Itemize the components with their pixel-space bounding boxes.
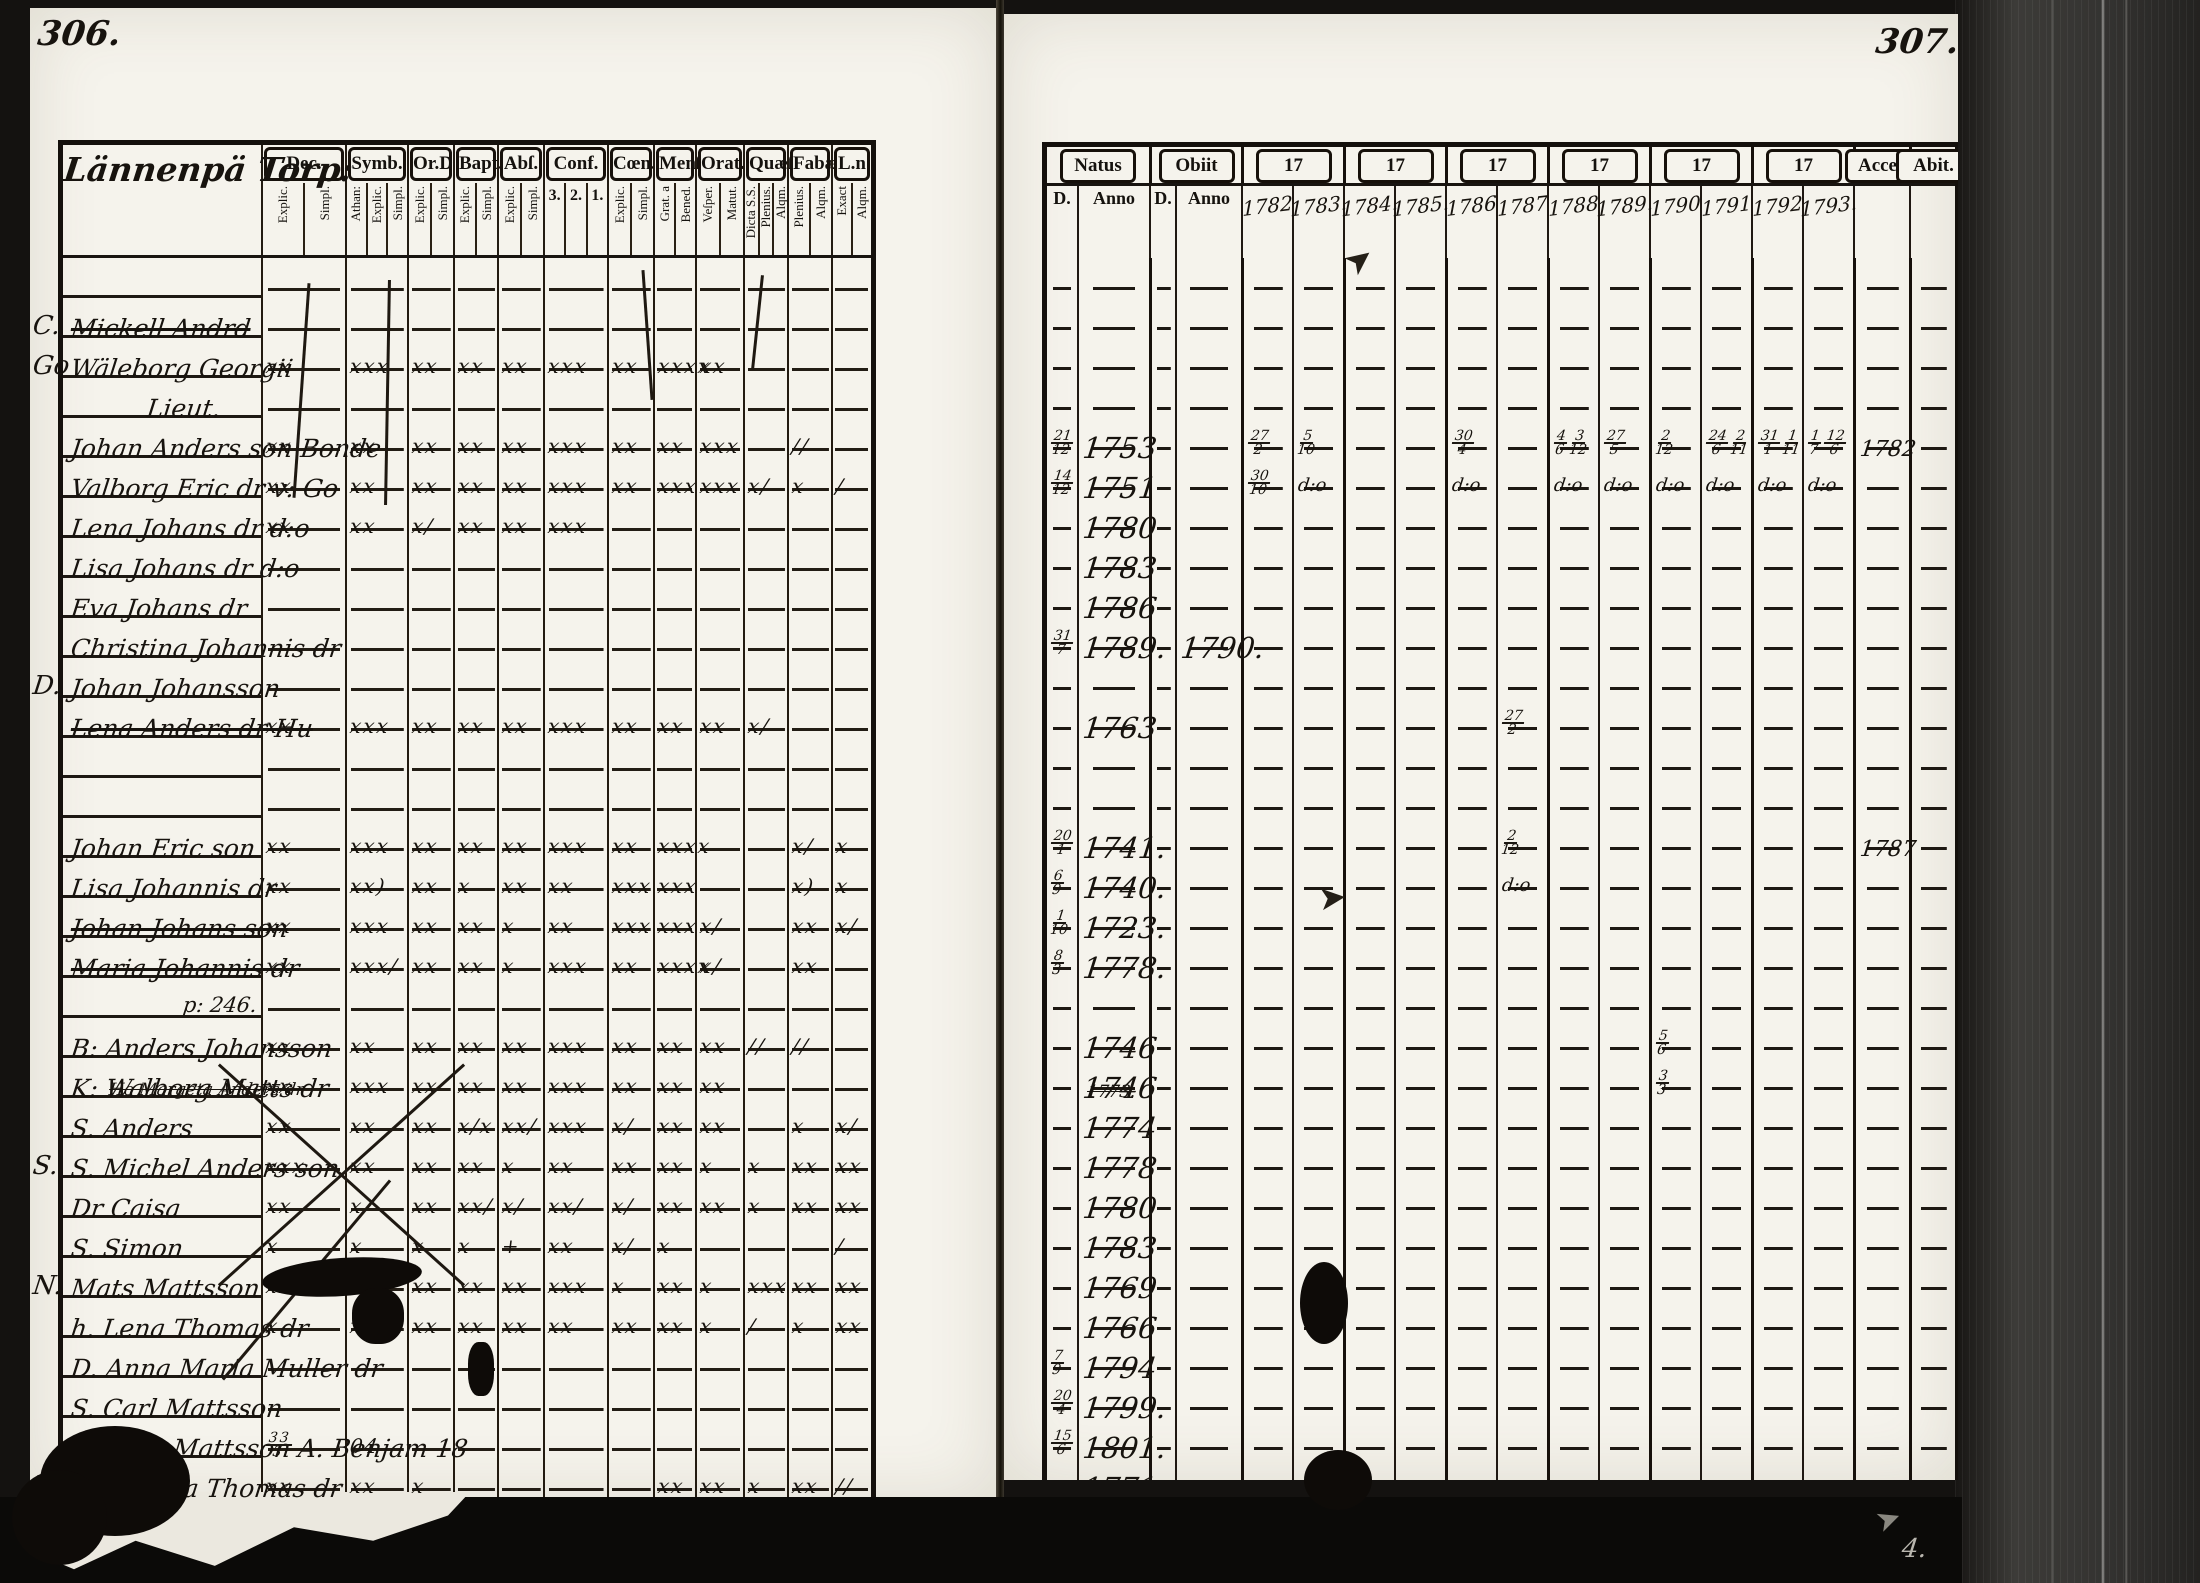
year-cell [1496,458,1547,498]
mark-cell [407,1378,453,1418]
mark-cell: xx [261,818,345,858]
mark-cell [407,738,453,778]
mark-cell [543,578,607,618]
year-cell [1343,738,1394,778]
ink-blot [1300,1262,1348,1344]
date-entry: 56 [1654,1030,1673,1056]
attendance-mark: xx [349,514,379,538]
name-cell: Johan Johans son [63,898,261,938]
mark-cell [407,538,453,578]
mark-cell [743,618,787,658]
column-label: Bapt. [456,147,496,181]
column-subheader: Simpl. [303,183,345,255]
column-header: Symb.Athan:Explic.Simpl. [345,145,407,255]
year-cell [1241,1418,1292,1458]
column-subheaders: Explic.Simpl. [409,183,453,255]
table-row: 2041799. [1047,1378,1955,1418]
year-cell [1445,538,1496,578]
acces-cell [1853,858,1909,898]
year-cell [1598,1258,1649,1298]
table-row [1047,258,1955,298]
name-cell: S.S. Michel Anders son [63,1138,261,1178]
mark-cell: xx [453,338,497,378]
year-cell [1394,1378,1445,1418]
attendance-mark: xxx [547,434,590,458]
date-entry: 212 [1654,430,1678,456]
obiit-anno-cell [1175,898,1241,938]
year-cell [1751,1418,1802,1458]
year-cell [1700,1258,1751,1298]
attendance-mark: x [699,1274,715,1298]
fraction: 126 [1822,430,1847,456]
mark-cell [743,578,787,618]
year-cell [1802,338,1853,378]
year-entry: d:o [1705,475,1736,496]
year-cell [1394,698,1445,738]
decade-group: 17 [1547,147,1649,183]
year-cell [1241,1218,1292,1258]
person-name: Lieut. [145,394,222,423]
table-row: Lena Johans dr d:oxx xx x/ xx xx xxx [63,498,871,538]
natus-day-cell: 69 [1047,858,1077,898]
mark-cell [653,258,695,298]
obiit-anno-cell [1175,458,1241,498]
attendance-mark: xx [349,1034,379,1058]
fraction: 1412 [1049,470,1074,496]
mark-cell: xxx [543,698,607,738]
attendance-mark: xxx [349,714,392,738]
name-cell: C.Mickell Andrd [63,298,261,338]
acces-cell [1853,498,1909,538]
year-cell [1445,1378,1496,1418]
year-cell: d:o [1700,458,1751,498]
year-cell [1598,1178,1649,1218]
year-cell [1496,618,1547,658]
mark-cell: xx [787,1258,831,1298]
obiit-anno-cell [1175,698,1241,738]
year-cell [1547,1218,1598,1258]
mark-cell: xx [497,698,543,738]
attendance-mark: xx [501,714,531,738]
year-cell: 46312 [1547,418,1598,458]
natus-day-cell [1047,258,1077,298]
acces-subheader [1853,186,1909,258]
year-cell [1700,978,1751,1018]
year-cell [1700,858,1751,898]
obiit-anno-cell [1175,538,1241,578]
obiit-anno-cell [1175,418,1241,458]
year-cell [1598,1418,1649,1458]
mark-cell: xx [407,698,453,738]
column-label: L.n [834,147,870,181]
year-cell [1751,1018,1802,1058]
mark-cell: xx [653,1058,695,1098]
year-entry: 1783 [1081,1231,1159,1265]
subheader-label: Simpl. [527,186,539,220]
mark-cell [743,258,787,298]
mark-cell: // [831,1458,871,1498]
mark-cell: xx [831,1178,871,1218]
mark-cell [261,738,345,778]
year-cell [1292,618,1343,658]
obiit-anno-cell [1175,378,1241,418]
mark-cell [743,378,787,418]
table-row: Maria Johannis drxx xxx/ xx xx x xxx xx … [63,938,871,978]
year-cell: d:o [1598,458,1649,498]
year-cell [1343,858,1394,898]
mark-cell: xxx [653,458,695,498]
mark-cell [607,578,653,618]
mark-cell: xx [345,498,407,538]
year-cell [1394,1018,1445,1058]
mark-cell: xx [787,898,831,938]
attendance-mark: x [791,1314,807,1338]
attendance-mark: xx [411,874,441,898]
year-cell [1751,338,1802,378]
margin-letter: C. [31,311,62,341]
mark-cell [607,658,653,698]
year-header: 1782 [1242,191,1293,262]
year-cell [1343,1218,1394,1258]
year-cell [1343,978,1394,1018]
acces-cell [1853,538,1909,578]
year-cell [1496,498,1547,538]
abit-cell [1909,1338,1955,1378]
year-cell [1343,818,1394,858]
name-cell: Dr Caisa [63,1178,261,1218]
year-cell [1598,1018,1649,1058]
attendance-mark: xx [611,1314,641,1338]
year-cell [1394,898,1445,938]
year-cell [1496,1458,1547,1480]
year-cell [1547,898,1598,938]
attendance-mark: xxx [547,954,590,978]
year-cell [1241,778,1292,818]
year-cell: d:o [1547,458,1598,498]
year-cell [1547,538,1598,578]
mark-cell [497,298,543,338]
attendance-mark: xx [265,1194,295,1218]
column-header: FabæPlenius.Alqm. [787,145,831,255]
fraction: 304 [1450,430,1475,456]
attendance-mark: xx [411,434,441,458]
mark-cell [345,378,407,418]
date-entry: 1412 [1049,470,1077,496]
attendance-mark: xx [699,1474,729,1498]
year-cell [1598,1298,1649,1338]
column-subheaders: Explic.Simpl. [499,183,543,255]
subheader-label: Dicta S.S. [745,186,757,238]
year-cell [1649,258,1700,298]
year-cell [1751,258,1802,298]
acces-cell [1853,1378,1909,1418]
name-cell: S. Simon [63,1218,261,1258]
mark-cell [743,538,787,578]
attendance-mark: // [791,1034,811,1058]
mark-cell [607,978,653,1018]
year-cell [1343,578,1394,618]
right-page-number: 307. [1874,22,1958,62]
name-cell: Lisa Johannis dr [63,858,261,898]
year-cell [1292,378,1343,418]
table-row: Lisa Johannis drxx xx) xx x xx xx xxx xx… [63,858,871,898]
year-cell [1496,1018,1547,1058]
subheader-label: Plenius. [793,186,805,228]
table-row: 1778 [1047,1138,1955,1178]
year-cell: 212 [1649,418,1700,458]
obiit-anno-cell [1175,338,1241,378]
year-header: 1785. [1392,190,1449,261]
year-cell [1496,898,1547,938]
year-cell [1649,1178,1700,1218]
table-row: Johan Anders son Bondexx xx xx xx xx xxx… [63,418,871,458]
column-label: Conf. [546,147,606,181]
year-cell [1649,1378,1700,1418]
fraction: 275 [1602,430,1627,456]
year-cell [1700,898,1751,938]
fraction: 156 [1049,1430,1074,1456]
fraction: 111 [1781,430,1802,456]
mark-cell: xx [407,818,453,858]
mark-cell [407,258,453,298]
attendance-mark: xx [611,714,641,738]
year-cell [1751,498,1802,538]
table-row: 1771. [1047,1458,1955,1480]
person-name: Johan Johansson [69,674,282,703]
year-entry: 1799. [1081,1391,1168,1425]
year-cell [1445,818,1496,858]
attendance-mark: x [611,1274,627,1298]
mark-cell [607,738,653,778]
year-cell [1394,1458,1445,1480]
year-cell [1343,938,1394,978]
year-cell [1598,978,1649,1018]
table-row: 2112175327251030446312275212246211311111… [1047,418,1955,458]
mark-cell [831,698,871,738]
year-cell [1598,498,1649,538]
mark-cell: xx [497,1258,543,1298]
attendance-mark: x [501,954,517,978]
year-header-cell: 1786 [1445,186,1496,258]
attendance-mark: xx [501,514,531,538]
year-cell [1598,1098,1649,1138]
column-subheaders: Explic.Simpl. [455,183,497,255]
year-cell [1445,258,1496,298]
year-cell [1343,1098,1394,1138]
mark-cell: xx [543,1298,607,1338]
acces-cell [1853,898,1909,938]
attendance-mark: xxx [547,474,590,498]
year-cell [1343,1138,1394,1178]
attendance-mark: xxx [657,914,700,938]
table-row: D.Johan Johansson [63,658,871,698]
year-cell: d:o [1751,458,1802,498]
column-header: Abſ.Explic.Simpl. [497,145,543,255]
mark-cell: xx [453,898,497,938]
attendance-mark: / [835,474,847,498]
year-cell [1241,258,1292,298]
natus-day-cell [1047,1298,1077,1338]
year-header: 1792 [1752,191,1803,262]
attendance-mark: xx) [349,874,388,898]
year-entry: d:o [1655,475,1686,496]
year-header-cell: 1787 [1496,186,1547,258]
year-cell [1598,298,1649,338]
year-cell: d:o [1292,458,1343,498]
mark-cell: + [497,1218,543,1258]
attendance-mark: xx [349,1474,379,1498]
year-cell [1802,1098,1853,1138]
table-row: 1783 [1047,1218,1955,1258]
mark-cell [607,1458,653,1498]
mark-cell: / [743,1298,787,1338]
mark-cell: xxx [695,418,743,458]
attendance-mark: xx [547,874,577,898]
attendance-mark: + [501,1234,523,1258]
table-row: Lisa Johans dr d:o [63,538,871,578]
attendance-mark: xxx [349,1074,392,1098]
year-cell [1394,578,1445,618]
year-cell [1496,1338,1547,1378]
year-cell [1343,498,1394,538]
attendance-mark: xxx/ [349,954,401,978]
attendance-mark: xxx [547,354,590,378]
year-cell [1598,1218,1649,1258]
attendance-mark: xx [791,1474,821,1498]
attendance-mark: xx [411,914,441,938]
attendance-mark: x [699,1154,715,1178]
year-cell [1547,778,1598,818]
mark-cell [743,1098,787,1138]
attendance-mark: xx [411,1154,441,1178]
year-cell [1751,1338,1802,1378]
year-cell [1394,1258,1445,1298]
person-name: Valborg Eric dr v: Go [69,474,340,503]
table-row: Johan Eric sonxx xxx xx xx xx xxx xx xxx… [63,818,871,858]
group-label: 17 [1256,149,1332,183]
mark-cell: xx [607,938,653,978]
mark-cell: xx [407,418,453,458]
attendance-mark: xx [411,354,441,378]
year-cell [1343,1058,1394,1098]
attendance-mark: xx [699,1194,729,1218]
subheader-label: Alqm. [815,186,827,219]
attendance-mark: x/ [747,474,772,498]
mark-cell [743,778,787,818]
year-cell [1445,618,1496,658]
mark-cell [345,738,407,778]
fraction: 201 [1049,830,1074,856]
fraction: 46 [1552,430,1568,456]
year-cell [1802,378,1853,418]
mark-cell: x [695,1258,743,1298]
mark-cell [653,658,695,698]
year-cell [1241,898,1292,938]
column-subheader: Explic. [455,183,475,255]
mark-cell [695,858,743,898]
table-row: 1101723. [1047,898,1955,938]
year-cell [1802,1378,1853,1418]
year-cell [1496,258,1547,298]
year-cell [1802,578,1853,618]
ink-blot [12,1470,107,1565]
table-row: 791794 [1047,1338,1955,1378]
attendance-mark: x [457,874,473,898]
year-header: 1788 [1548,191,1599,262]
mark-cell [345,658,407,698]
film-scan: 306. Lännenpä Torp: Dec.Explic.Simpl.Sym… [0,0,2200,1583]
mark-cell [695,738,743,778]
year-cell [1547,698,1598,738]
year-cell [1445,498,1496,538]
mark-cell: x/ [831,898,871,938]
column-subheader: Bened. [674,183,695,255]
attendance-mark: xx/ [501,1114,539,1138]
acces-cell [1853,698,1909,738]
person-name: Dr Caisa [69,1194,182,1223]
year-cell: 33 [1649,1058,1700,1098]
year-cell [1445,1178,1496,1218]
column-subheader: Simpl. [430,183,453,255]
date-entry: 246211 [1704,430,1753,456]
abit-cell [1909,938,1955,978]
year-entry: 1783 [1081,551,1159,585]
mark-cell [787,298,831,338]
year-cell [1343,658,1394,698]
subheader-label: Athan: [350,186,362,221]
year-cell [1241,338,1292,378]
acces-cell [1853,938,1909,978]
attendance-mark: xxx [547,1074,590,1098]
mark-cell [453,298,497,338]
attendance-mark: x [501,1154,517,1178]
mark-cell [653,538,695,578]
table-row [1047,298,1955,338]
year-cell [1751,1258,1802,1298]
year-entry: 1780 [1081,511,1159,545]
table-row: N.Mats Mattssonxx xx xx xx xx xxx x xx x… [63,1258,871,1298]
mark-cell [345,978,407,1018]
mark-cell: xxx [543,818,607,858]
attendance-mark: xx [349,434,379,458]
mark-cell: xxx [543,1058,607,1098]
year-cell [1751,1178,1802,1218]
natus-anno-cell [1077,778,1149,818]
ink-blot [468,1342,494,1396]
attendance-mark: x/ [699,914,724,938]
mark-cell [787,738,831,778]
attendance-mark: xx [657,1154,687,1178]
mark-cell: x/ [743,698,787,738]
table-row [63,778,871,818]
mark-cell [453,538,497,578]
table-row [63,738,871,778]
year-cell [1547,618,1598,658]
page-gutter [996,0,1004,1512]
year-cell [1241,738,1292,778]
mark-cell: xx [831,1258,871,1298]
year-cell [1700,618,1751,658]
year-cell [1802,538,1853,578]
natus-day-cell [1047,738,1077,778]
decade-group: 17 [1343,147,1445,183]
mark-cell [453,258,497,298]
column-subheaders: Athan:Explic.Simpl. [347,183,407,255]
mark-cell: xx [261,898,345,938]
mark-cell [653,498,695,538]
mark-cell: xx/ [497,1098,543,1138]
mark-cell [345,778,407,818]
